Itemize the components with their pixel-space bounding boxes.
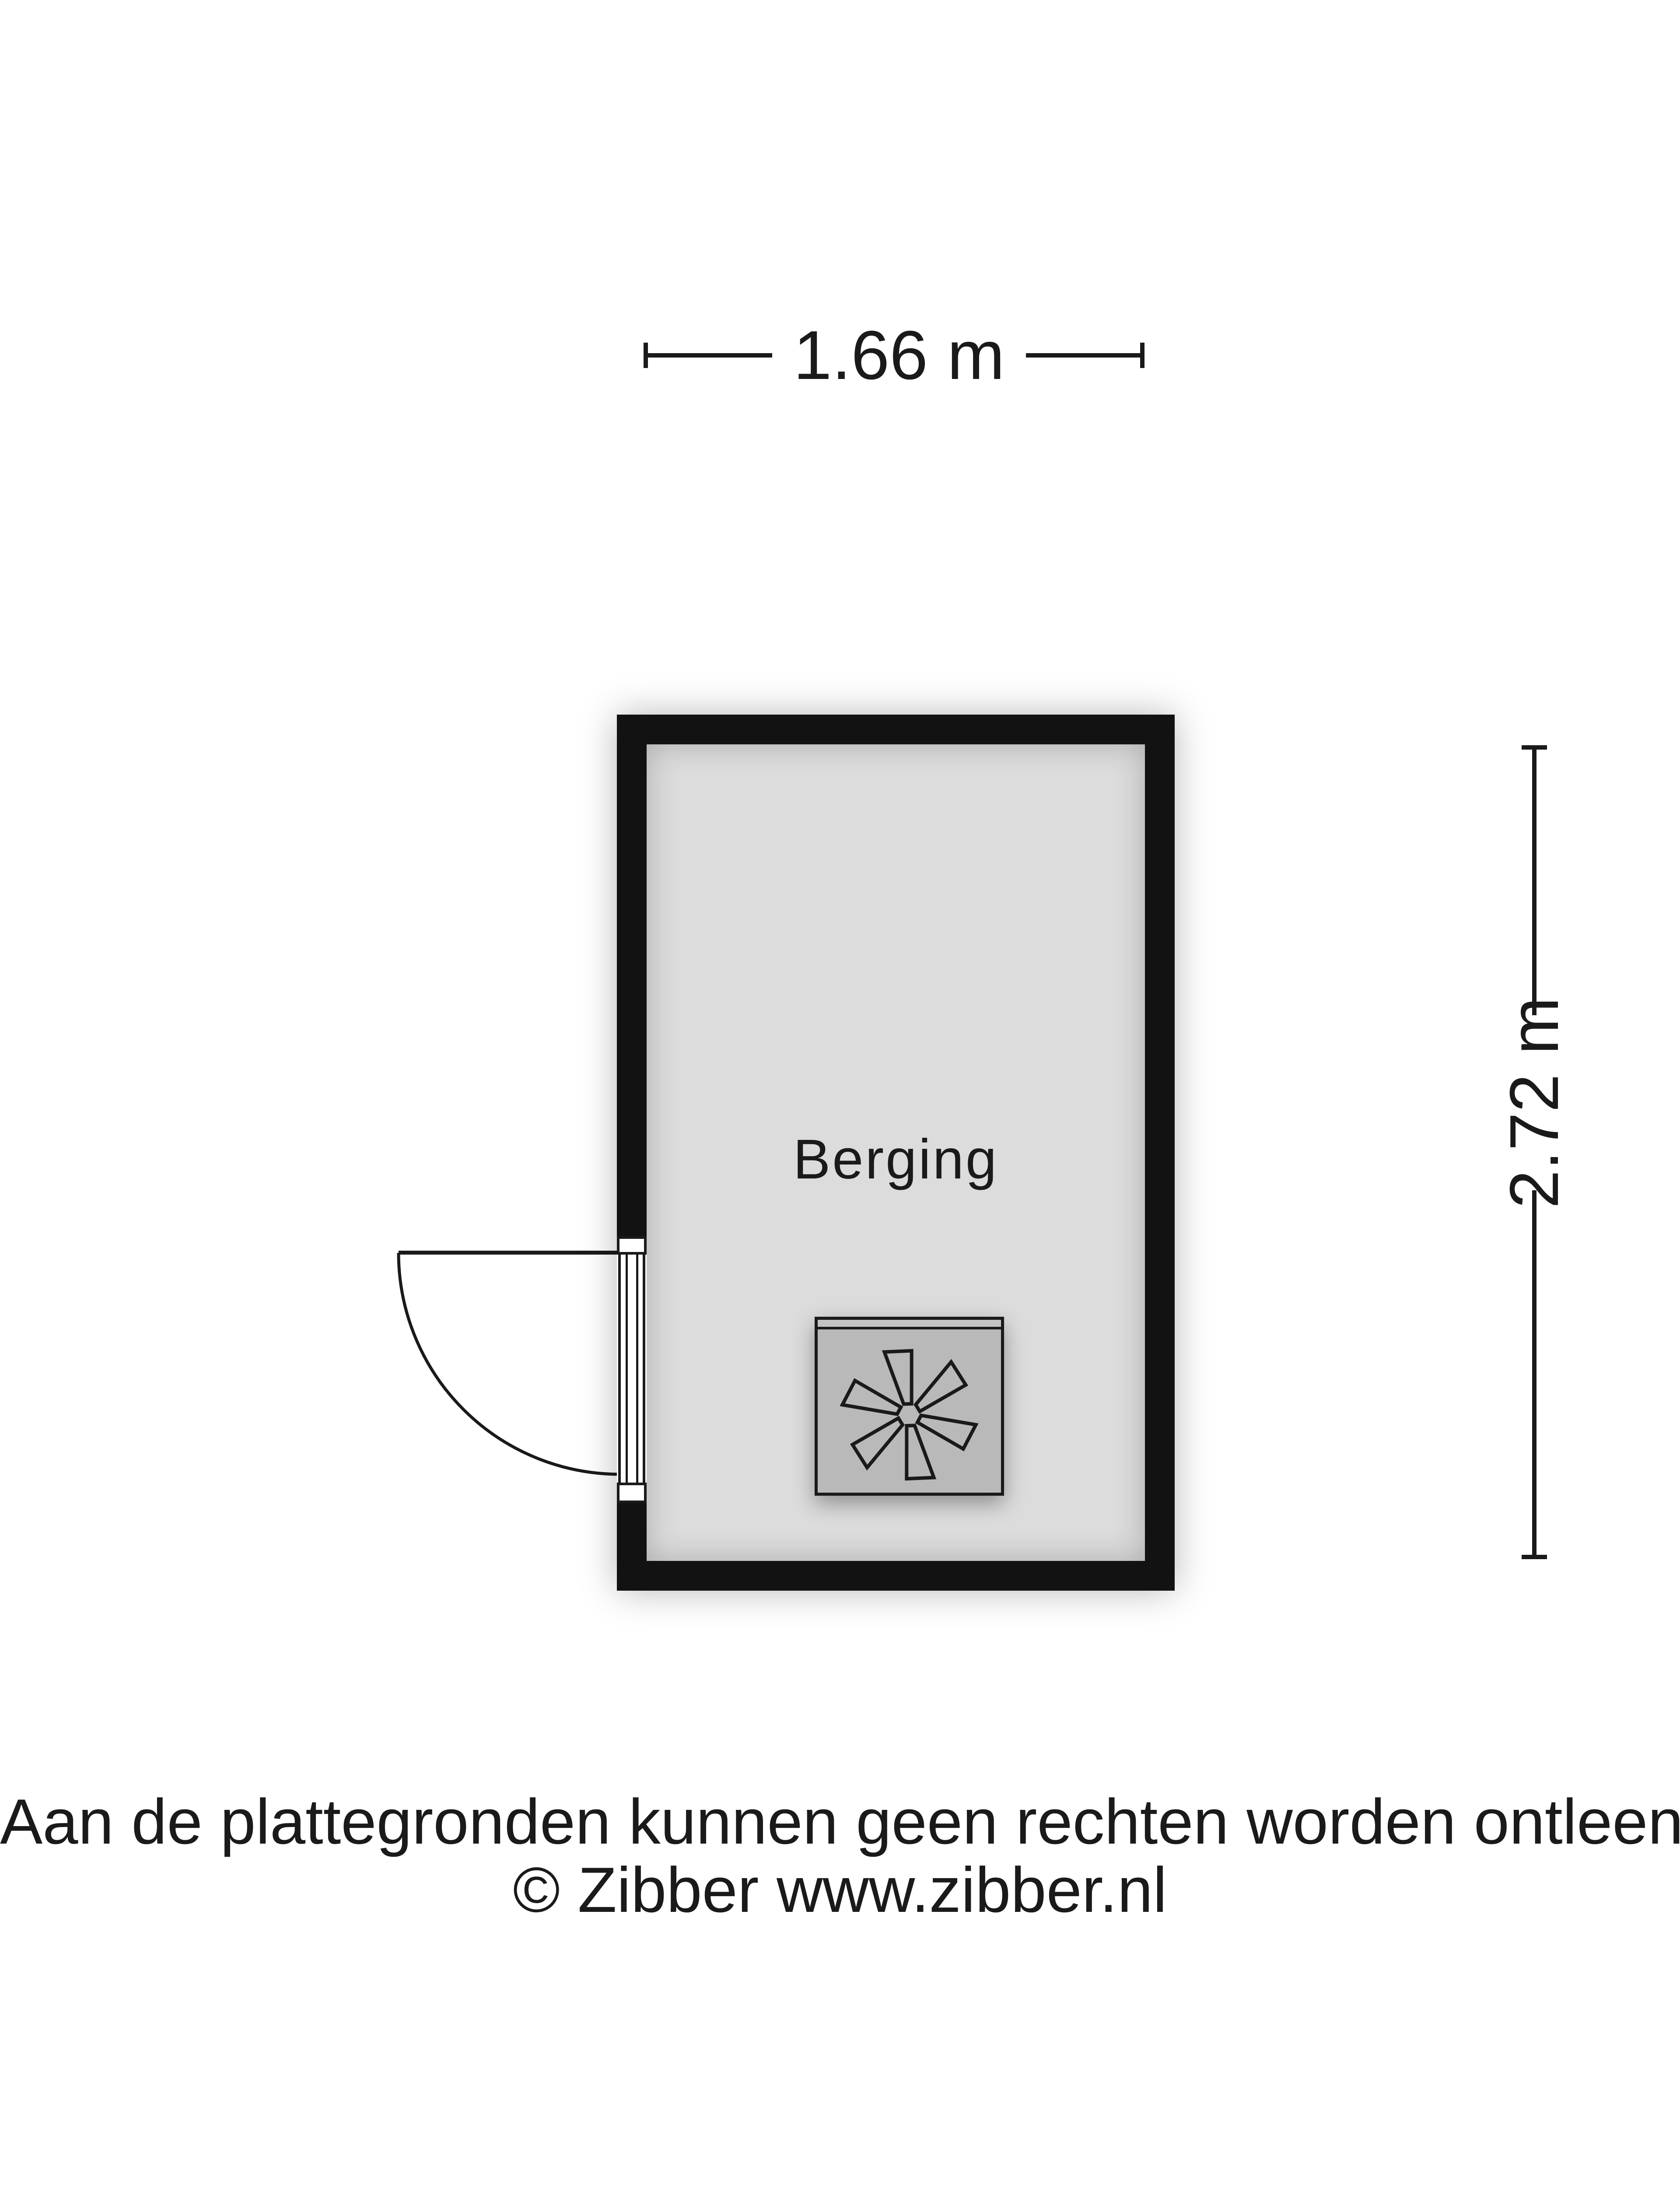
dimension-tick (1140, 343, 1144, 368)
door-jamb-line (618, 1254, 621, 1483)
door-frame-bottom (617, 1483, 647, 1503)
door-jamb-line (626, 1254, 628, 1483)
room-label: Berging (647, 1131, 1145, 1188)
footer: Aan de plattegronden kunnen geen rechten… (0, 1788, 1680, 1924)
footer-copyright: © Zibber www.zibber.nl (0, 1856, 1680, 1924)
door-jamb-line (636, 1254, 638, 1483)
fan-unit-lid (818, 1320, 1001, 1329)
door-opening (617, 1254, 647, 1483)
fan-unit (815, 1317, 1004, 1496)
door-frame-top (617, 1236, 647, 1255)
fan-icon (830, 1336, 988, 1494)
floorplan-canvas: 1.66 m 2.72 m Berging (0, 0, 1680, 2188)
room-berging: Berging (617, 715, 1175, 1591)
door-swing-arc (385, 1238, 630, 1483)
door-jamb-line (643, 1254, 645, 1483)
door-leaf (399, 1251, 622, 1255)
footer-disclaimer: Aan de plattegronden kunnen geen rechten… (0, 1788, 1680, 1856)
width-dimension-label: 1.66 m (772, 320, 1026, 390)
width-dimension-line-right (1026, 353, 1144, 358)
height-dimension-line-bottom (1532, 1190, 1536, 1559)
dimension-tick (1522, 1555, 1547, 1559)
width-dimension-line-left (645, 353, 772, 358)
